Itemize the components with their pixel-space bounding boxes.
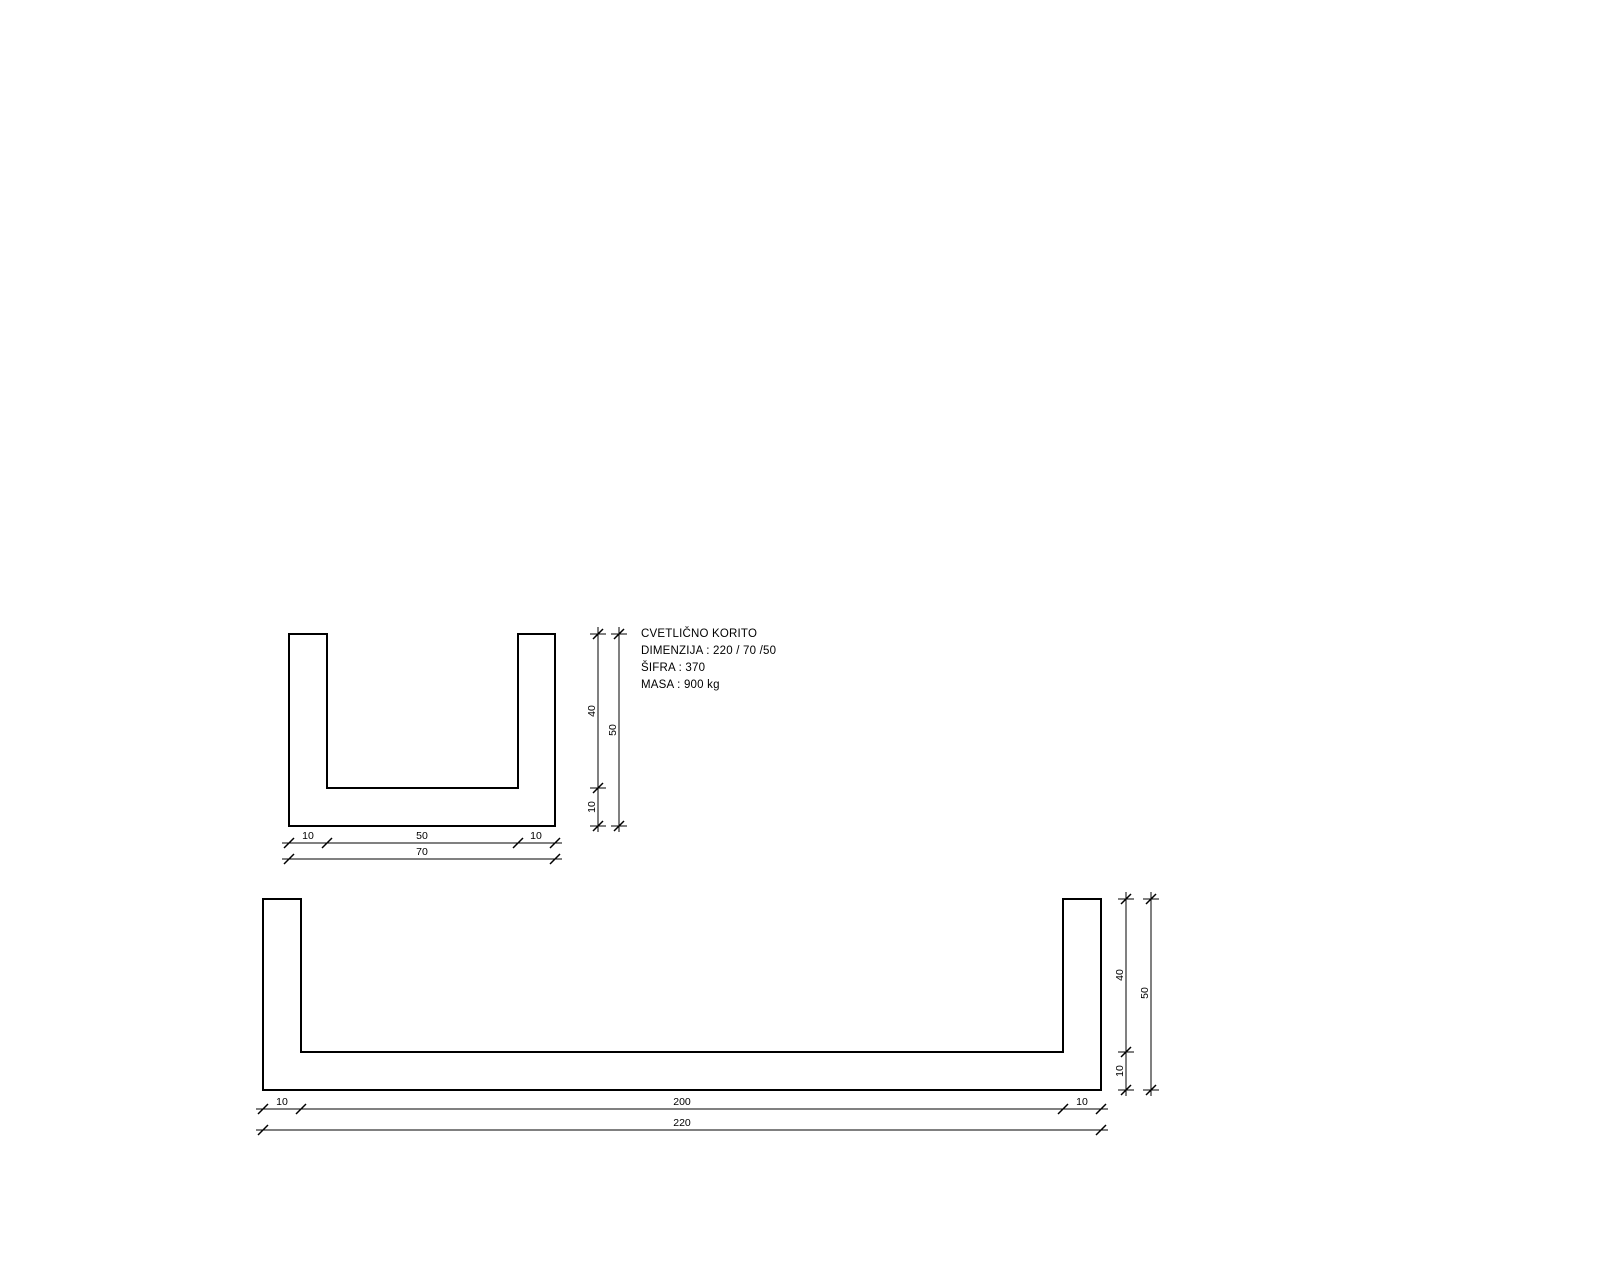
annotation-code: ŠIFRA : 370 xyxy=(641,661,705,674)
dim-label-inner-width: 200 xyxy=(673,1096,691,1108)
dim-label-total-width: 70 xyxy=(416,846,428,858)
dim-label-total-height: 50 xyxy=(1139,987,1151,999)
dim-label-total-height: 50 xyxy=(607,724,619,736)
annotation-dimensions: DIMENZIJA : 220 / 70 /50 xyxy=(641,645,776,657)
dim-label-inner-height: 40 xyxy=(1114,969,1126,981)
long-section-view: 10 200 10 220 40 10 xyxy=(256,892,1159,1135)
dim-label-base-thickness: 10 xyxy=(1114,1065,1126,1077)
dim-label-inner-height: 40 xyxy=(586,705,598,717)
dim-label-inner-width: 50 xyxy=(416,830,428,842)
annotation-title: CVETLIČNO KORITO xyxy=(641,627,757,640)
technical-drawing-canvas: 10 50 10 70 40 10 xyxy=(0,0,1600,1280)
dim-label-total-width: 220 xyxy=(673,1117,691,1129)
long-section-side-dim-chain: 40 10 xyxy=(1114,892,1134,1096)
small-section-overall-width-dim: 70 xyxy=(282,846,562,864)
dim-label-left-wall: 10 xyxy=(276,1096,288,1108)
dim-label-base-thickness: 10 xyxy=(586,801,598,813)
long-section-bottom-dim-chain: 10 200 10 xyxy=(256,1096,1108,1114)
annotation-block: CVETLIČNO KORITO DIMENZIJA : 220 / 70 /5… xyxy=(641,627,776,691)
long-section-overall-height-dim: 50 xyxy=(1139,892,1159,1096)
small-section-overall-height-dim: 50 xyxy=(607,627,627,832)
dim-label-right-wall: 10 xyxy=(1076,1096,1088,1108)
long-section-overall-width-dim: 220 xyxy=(256,1117,1108,1135)
small-section-view: 10 50 10 70 40 10 xyxy=(282,627,627,864)
annotation-mass: MASA : 900 kg xyxy=(641,679,720,691)
long-section-outline xyxy=(263,899,1101,1090)
small-section-side-dim-chain: 40 10 xyxy=(586,627,606,832)
dim-label-right-wall: 10 xyxy=(530,830,542,842)
dim-label-left-wall: 10 xyxy=(302,830,314,842)
small-section-outline xyxy=(289,634,555,826)
